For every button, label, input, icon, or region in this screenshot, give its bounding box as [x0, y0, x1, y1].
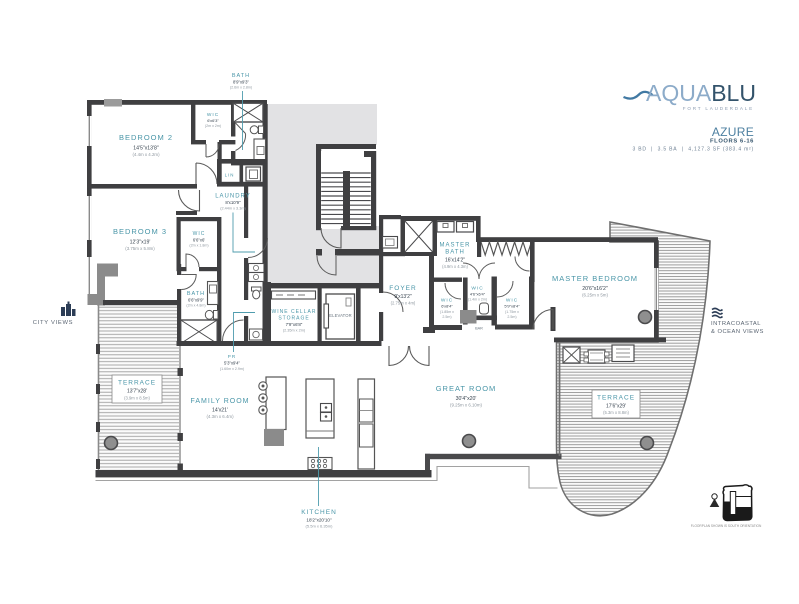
svg-text:PR: PR: [228, 354, 236, 359]
svg-text:BATH: BATH: [445, 250, 465, 256]
svg-text:AQUABLU: AQUABLU: [646, 80, 756, 106]
svg-text:BAR: BAR: [475, 327, 483, 331]
svg-text:BEDROOM 2: BEDROOM 2: [119, 133, 173, 142]
svg-text:FORT LAUDERDALE: FORT LAUDERDALE: [683, 106, 754, 111]
svg-text:8'x10'9": 8'x10'9": [225, 200, 241, 205]
svg-text:(5.5m x 6.35m): (5.5m x 6.35m): [306, 524, 334, 529]
svg-text:TERRACE: TERRACE: [118, 380, 156, 387]
svg-text:(1.60m x 2.9m): (1.60m x 2.9m): [220, 367, 244, 371]
svg-text:MASTER BEDROOM: MASTER BEDROOM: [552, 274, 638, 283]
svg-text:FAMILY ROOM: FAMILY ROOM: [191, 398, 250, 405]
svg-text:4'6"x6'4": 4'6"x6'4": [470, 292, 486, 297]
svg-text:12'3"x19': 12'3"x19': [130, 240, 151, 246]
svg-text:2.5m): 2.5m): [442, 315, 451, 319]
svg-text:LAUNDRY: LAUNDRY: [215, 194, 251, 200]
svg-text:(2.6m x 2.8m): (2.6m x 2.8m): [230, 86, 252, 90]
svg-text:(2m x 1.8m): (2m x 1.8m): [189, 244, 208, 248]
svg-text:(2m x 4.8m): (2m x 4.8m): [186, 304, 205, 308]
svg-text:FLOORS 6-16: FLOORS 6-16: [710, 139, 754, 145]
svg-text:18'2"x20'10": 18'2"x20'10": [306, 518, 332, 523]
svg-text:(1.4m x 2m): (1.4m x 2m): [468, 298, 487, 302]
svg-text:ELEVATOR: ELEVATOR: [329, 313, 351, 318]
svg-text:(4.9m x 4.3m): (4.9m x 4.3m): [442, 264, 468, 269]
svg-text:STORAGE: STORAGE: [278, 316, 309, 322]
svg-text:9'x13'2": 9'x13'2": [394, 294, 412, 300]
svg-text:(3.9m x 8.5m): (3.9m x 8.5m): [124, 396, 150, 401]
svg-text:& OCEAN VIEWS: & OCEAN VIEWS: [711, 329, 764, 335]
svg-text:(2.44m x 3.3m): (2.44m x 3.3m): [220, 207, 246, 211]
svg-text:BATH: BATH: [232, 73, 250, 79]
svg-text:BEDROOM 3: BEDROOM 3: [113, 227, 167, 236]
svg-text:CITY VIEWS: CITY VIEWS: [33, 320, 73, 326]
svg-text:16'x14'2": 16'x14'2": [445, 258, 465, 264]
svg-text:20'6"x16'2": 20'6"x16'2": [582, 286, 608, 292]
svg-text:FLOORPLAN SHOWN IS SOUTH ORIEN: FLOORPLAN SHOWN IS SOUTH ORIENTATION: [691, 524, 762, 528]
svg-text:13'7"x28': 13'7"x28': [127, 389, 147, 395]
svg-text:(4.4m x 4.2m): (4.4m x 4.2m): [132, 152, 160, 157]
svg-text:MASTER: MASTER: [439, 243, 470, 249]
svg-text:(6.25m x 5m): (6.25m x 5m): [582, 293, 608, 298]
svg-text:(4.3m x 6.4m): (4.3m x 6.4m): [206, 414, 234, 419]
svg-text:8'9"x9'3": 8'9"x9'3": [233, 80, 249, 85]
svg-text:3 BD | 3.5 BA | 4,127.3 SF: 3 BD | 3.5 BA | 4,127.3 SF (383.4 m²): [632, 147, 754, 153]
svg-text:FOYER: FOYER: [389, 285, 416, 292]
svg-text:6'6"x9'9": 6'6"x9'9": [188, 298, 204, 303]
svg-text:7'9"x6'8": 7'9"x6'8": [286, 322, 303, 327]
svg-text:AZURE: AZURE: [712, 125, 754, 139]
svg-text:(5.3m x 8.8m): (5.3m x 8.8m): [603, 410, 629, 415]
svg-text:(2m x 2m): (2m x 2m): [205, 124, 221, 128]
svg-text:BATH: BATH: [187, 291, 205, 297]
svg-text:(3.75m x 5.8m): (3.75m x 5.8m): [125, 246, 155, 251]
svg-text:GREAT ROOM: GREAT ROOM: [436, 384, 497, 393]
svg-text:TERRACE: TERRACE: [597, 395, 635, 402]
svg-text:14'x21': 14'x21': [212, 408, 228, 414]
svg-text:5'3"x9'4": 5'3"x9'4": [224, 361, 240, 366]
svg-text:(2.35m x 2m): (2.35m x 2m): [283, 329, 306, 333]
svg-text:(9.25m x 6.10m): (9.25m x 6.10m): [450, 403, 483, 408]
svg-text:2.5m): 2.5m): [507, 315, 516, 319]
svg-text:6'6"x6': 6'6"x6': [193, 238, 205, 243]
svg-text:WINE CELLAR: WINE CELLAR: [272, 309, 317, 315]
svg-text:(2.75m x 4m): (2.75m x 4m): [391, 301, 416, 306]
svg-text:WIC: WIC: [193, 231, 206, 237]
svg-text:6'x6'3": 6'x6'3": [207, 118, 219, 123]
svg-text:30'4"x20': 30'4"x20': [456, 396, 477, 402]
svg-text:6'x8'4": 6'x8'4": [441, 304, 453, 309]
svg-text:5'9"x8'4": 5'9"x8'4": [504, 304, 520, 309]
svg-text:LIN: LIN: [225, 173, 235, 178]
svg-text:17'6"x29': 17'6"x29': [606, 404, 626, 410]
svg-text:14'5"x13'8": 14'5"x13'8": [133, 146, 159, 152]
svg-text:(1.75m x: (1.75m x: [505, 310, 519, 314]
svg-text:KITCHEN: KITCHEN: [301, 509, 337, 516]
svg-text:(1.85m x: (1.85m x: [440, 310, 454, 314]
svg-text:INTRACOASTAL: INTRACOASTAL: [711, 321, 761, 327]
